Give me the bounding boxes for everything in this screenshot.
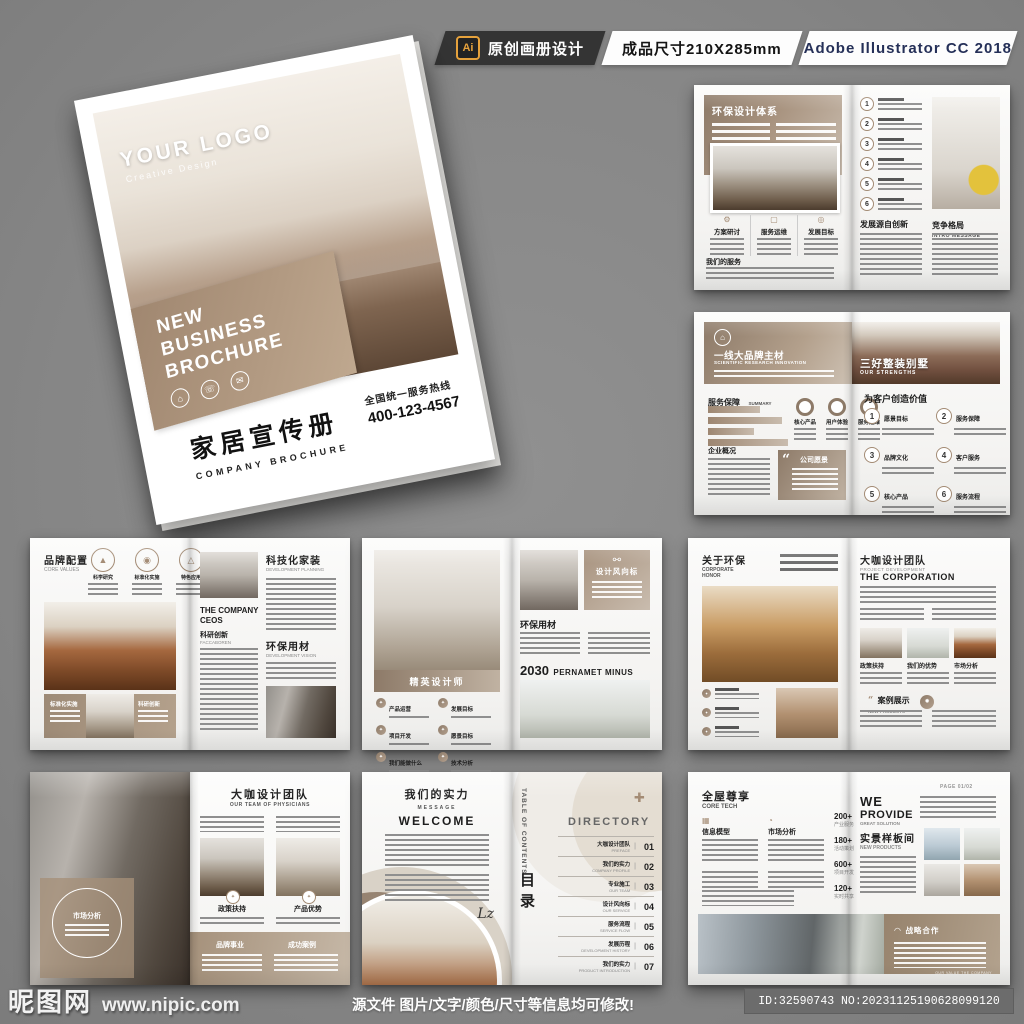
- s5-left-title-block: 关于环保 CORPORATE HONOR: [702, 552, 746, 579]
- spread-brand-materials: ⌂ 一线大品牌主材 SCIENTIFIC RESEARCH INNOVATION…: [694, 312, 1010, 515]
- s7-welcome-heading: WELCOME: [362, 814, 512, 828]
- spread-core-tech: 全屋尊享 CORE TECH ▦ 信息模型 ◔ 市场分析 200+产业服务 18…: [688, 772, 1010, 985]
- s8-coop-title: 战略合作: [905, 926, 939, 935]
- s8-right-sub: NEW PRODUCTS: [860, 845, 915, 851]
- home-icon: ⌂: [169, 386, 191, 410]
- item-label: 愿景目标: [451, 734, 473, 740]
- text-placeholder: [708, 458, 770, 496]
- s5-p2: 我们的优势: [907, 661, 949, 670]
- s3-hall-photo: [266, 686, 336, 738]
- text-placeholder: [860, 233, 922, 275]
- s5-left-title: 关于环保: [702, 552, 746, 567]
- bullet-icon: ✦: [376, 725, 386, 735]
- spread-eco-design-system: 环保设计体系 ⚙ 方案研讨 ▢ 服务运维 ◎ 发展目标 我们的服务: [694, 85, 1010, 290]
- gear-icon: ⚙: [704, 215, 750, 224]
- size-badge: 成品尺寸210X285mm: [601, 31, 802, 65]
- s5-left-sub2: HONOR: [702, 573, 746, 579]
- text-placeholder: [520, 632, 580, 656]
- s8-left-title-block: 全屋尊享 CORE TECH: [702, 788, 750, 810]
- text-placeholder: [860, 586, 996, 604]
- s3-mid-sub: FACCABOREN: [200, 640, 231, 645]
- s6-p2: 产品优势: [276, 904, 340, 914]
- s3-band1-label: 标准化实施: [50, 700, 78, 708]
- s4-num: 2030: [520, 663, 549, 678]
- s7-left-title: 我们的实力: [362, 786, 512, 802]
- s6-p1: 政策扶持: [200, 904, 264, 914]
- s3-band-photo: [86, 694, 134, 738]
- stat-value: 120+: [834, 884, 854, 893]
- s3-sub: CORE VALUES: [44, 567, 88, 573]
- s5-photo-row: 政策扶持 我们的优势 市场分析: [860, 628, 996, 684]
- text-placeholder: [710, 238, 744, 256]
- s8-we-sub: GREAT SOLUTION: [860, 821, 913, 826]
- quote-icon: “: [868, 696, 873, 706]
- s7-directory-list: 大咖设计团队PREFACE|01 我们的实力COMPANY PROFILE|02…: [558, 836, 654, 976]
- pie-chart-icon: ◔: [768, 816, 824, 825]
- s6-circle-label: 市场分析: [73, 911, 101, 921]
- s8-left-sub: CORE TECH: [702, 804, 750, 810]
- s3-company-label: THE COMPANYCEOS: [200, 606, 259, 626]
- s2-banner-photo: 三好整装别墅 OUR STRENGTHS: [852, 322, 1000, 384]
- stat-value: 600+: [834, 860, 854, 869]
- s2-photo-caption: 三好整装别墅: [860, 356, 929, 371]
- s2-banner-left: ⌂ 一线大品牌主材 SCIENTIFIC RESEARCH INNOVATION: [704, 322, 852, 384]
- s8-loft-photo: ◠ 战略合作 OUR VALUE THE COMPANY: [698, 914, 1000, 974]
- s7-left-sub: MESSAGE: [362, 805, 512, 811]
- s2-icon2-label: 用户体验: [826, 418, 848, 426]
- s3-right-title1: 科技化家装: [266, 552, 324, 567]
- s1-numbered-list: 1 2 3 4 5 6: [860, 97, 922, 211]
- s4-2030-heading: 2030 PERNAMET MINUS: [520, 662, 633, 680]
- s2-quote-title: 公司愿景: [800, 455, 828, 465]
- text-placeholder: [776, 123, 836, 140]
- s4-box-title: 设计风向标: [584, 566, 650, 577]
- item-label: 愿景目标: [884, 417, 908, 423]
- s8-icon2-label: 市场分析: [768, 827, 824, 837]
- s3-right-title1-block: 科技化家装 DEVELOPMENT PLANNING: [266, 552, 324, 572]
- s8-we-block: WE PROVIDE GREAT SOLUTION: [860, 794, 913, 826]
- s1-right-title2: 竞争格局: [932, 221, 964, 230]
- s4-right-title: 环保用材: [520, 618, 556, 631]
- s8-icon-col2: ◔ 市场分析: [768, 816, 824, 889]
- s3-mid-label: 科研创新: [200, 630, 231, 640]
- s1-interior-photo: [932, 97, 1000, 209]
- s6-band2: 成功案例: [288, 940, 316, 950]
- badge3-label: Adobe Illustrator CC 2018: [804, 40, 1012, 57]
- item-label: 品牌文化: [884, 456, 908, 462]
- item-label: 服务流程: [956, 495, 980, 501]
- logo-icon: ⌂: [714, 329, 731, 346]
- stat-label: 实时共享: [834, 893, 854, 900]
- list-number: 2: [860, 117, 874, 131]
- item-label: 发展目标: [451, 707, 473, 713]
- s3-right-sub1: DEVELOPMENT PLANNING: [266, 567, 324, 572]
- phone-icon: ☏: [199, 377, 221, 401]
- s3-bedroom-photo: [200, 552, 258, 598]
- s5-right-title: 大咖设计团队: [860, 552, 926, 567]
- item-label: 项目开发: [389, 734, 411, 740]
- stat-label: 活动策划: [834, 845, 854, 852]
- watermark-site-cn: 昵图网: [8, 982, 92, 1019]
- text-placeholder: [860, 608, 924, 622]
- bullet-icon: ✦: [438, 698, 448, 708]
- s7-directory-heading: DIRECTORY: [568, 816, 650, 828]
- text-placeholder: [200, 648, 258, 732]
- s8-we2: PROVIDE: [860, 809, 913, 821]
- item-label: 技术分析: [451, 761, 473, 767]
- bullet-icon: ✦: [376, 698, 386, 708]
- mail-icon: ✉: [229, 369, 251, 393]
- cover-hotline-block: 全国统一服务热线 400-123-4567: [363, 375, 461, 427]
- s7-signature: Lz: [362, 906, 512, 922]
- s2-icon1-label: 核心产品: [794, 418, 816, 426]
- s8-stats: 200+产业服务 180+活动策划 600+项目开发 120+实时共享: [834, 812, 854, 900]
- item-label: 产品运营: [389, 707, 411, 713]
- s8-we1: WE: [860, 794, 913, 809]
- s3-title-block: 品牌配置 CORE VALUES: [44, 552, 88, 573]
- s2-company-label: 企业概况: [708, 446, 736, 456]
- s5-p3: 市场分析: [954, 661, 996, 670]
- s8-icon-col1: ▦ 信息模型: [702, 816, 758, 889]
- s1-services-label: 我们的服务: [706, 257, 741, 267]
- s5-right-title-block: 大咖设计团队 PROJECT DEVELOPMENT: [860, 552, 926, 572]
- bullet-icon: ✦: [438, 725, 448, 735]
- s2-bar-chart: [708, 406, 788, 446]
- text-placeholder: [932, 233, 998, 275]
- s3-c2: 标准化实施: [132, 574, 162, 581]
- s1-col2-label: 服务运维: [751, 226, 797, 236]
- text-placeholder: [706, 267, 834, 281]
- text-placeholder: [792, 468, 838, 492]
- item-label: 服务保障: [956, 417, 980, 423]
- s8-coop-sub: OUR VALUE THE COMPANY: [884, 971, 992, 975]
- list-number: 5: [860, 177, 874, 191]
- s3-title: 品牌配置: [44, 552, 88, 567]
- s4-living-photo: [520, 680, 650, 738]
- text-placeholder: [588, 632, 650, 656]
- item-number: 6: [936, 486, 952, 502]
- adobe-illustrator-icon: Ai: [456, 36, 480, 60]
- s2-right-title: 为客户创造价值: [864, 392, 927, 405]
- spread-brand-config: 品牌配置 CORE VALUES ▲科学研究 ◉标准化实施 △特色应用 标准化实…: [30, 538, 350, 750]
- design-preview-canvas: Ai 原创画册设计 成品尺寸210X285mm Adobe Illustrato…: [0, 0, 1024, 1024]
- spread-elite-designers: 精英设计师 ✦产品运营 ✦发展目标 ✦项目开发 ✦愿景目标 ✦我们能做什么 ✦技…: [362, 538, 662, 750]
- original-design-badge: Ai 原创画册设计: [434, 31, 605, 65]
- badge-icon: ✦: [302, 890, 316, 904]
- quote-icon: “: [782, 452, 790, 468]
- s1-col3-label: 发展目标: [798, 226, 844, 236]
- s1-col1-label: 方案研讨: [704, 226, 750, 236]
- badge2-label: 成品尺寸210X285mm: [622, 38, 782, 59]
- monitor-icon: ▢: [751, 215, 797, 224]
- bullet-icon: ✦: [438, 752, 448, 762]
- s4-trend-box: ⚯ 设计风向标: [584, 550, 650, 610]
- compass-icon: ✹: [920, 695, 934, 709]
- target-icon: ◎: [798, 215, 844, 224]
- text-placeholder: [860, 856, 916, 894]
- model-icon: ▦: [702, 816, 758, 825]
- s7-welcome-block: 我们的实力 MESSAGE WELCOME Lz: [362, 786, 512, 922]
- stat-label: 项目开发: [834, 869, 854, 876]
- text-placeholder: [266, 578, 336, 630]
- s3-circles: ▲科学研究 ◉标准化实施 △特色应用: [88, 548, 206, 595]
- text-placeholder: [200, 816, 264, 832]
- item-number: 4: [936, 447, 952, 463]
- s5-bed-photo: [776, 688, 838, 738]
- s6-band1: 品牌事业: [216, 940, 244, 950]
- text-placeholder: [804, 238, 838, 256]
- badge-icon: ✦: [226, 890, 240, 904]
- text-placeholder: [920, 796, 996, 818]
- software-badge: Adobe Illustrator CC 2018: [798, 31, 1017, 65]
- s7-toc-cn: 目录: [516, 872, 537, 914]
- s6-band: 品牌事业 成功案例: [190, 932, 350, 985]
- plus-icon: ✚: [634, 790, 645, 806]
- headset-icon: ◠: [894, 926, 901, 935]
- spread-directory: 我们的实力 MESSAGE WELCOME Lz TABLE OF CONTEN…: [362, 772, 662, 985]
- s1-columns: ⚙ 方案研讨 ▢ 服务运维 ◎ 发展目标: [704, 215, 844, 256]
- spread-about-eco: 关于环保 CORPORATE HONOR ✦ ✦ ✦ 大咖设计团队 PROJEC…: [688, 538, 1010, 750]
- s3-c1: 科学研究: [88, 574, 118, 581]
- s8-coop-panel: ◠ 战略合作 OUR VALUE THE COMPANY: [884, 914, 1000, 974]
- s3-right-title2-block: 环保用材 DEVELOPMENT VISION: [266, 638, 316, 658]
- s4-caption: 精英设计师: [409, 675, 464, 688]
- s8-photo-grid: [924, 828, 1000, 896]
- s5-case-title: 案例展示: [878, 696, 910, 705]
- spread-design-team: 市场分析 大咖设计团队 OUR TEAM OF PHYSICIANS ✦ 政策扶…: [30, 772, 350, 985]
- s4-large-photo: 精英设计师: [374, 550, 500, 692]
- text-placeholder: [860, 710, 922, 728]
- s5-wardrobe-photo: [702, 586, 838, 682]
- s8-showroom-block: 实景样板间 NEW PRODUCTS: [860, 830, 915, 851]
- text-placeholder: [757, 238, 791, 256]
- stat-value: 180+: [834, 836, 854, 845]
- s3-right-title2: 环保用材: [266, 638, 316, 653]
- share-icon: ⚯: [584, 555, 650, 566]
- footer-id-text: ID:32590743 NO:20231125190628099120: [758, 995, 1000, 1008]
- stat-value: 200+: [834, 812, 854, 821]
- bullet-icon: ✦: [376, 752, 386, 762]
- s7-toc-vertical: TABLE OF CONTENTS: [520, 788, 527, 875]
- s4-num-label: PERNAMET MINUS: [553, 668, 633, 677]
- text-placeholder: [932, 710, 996, 728]
- text-placeholder: [780, 554, 838, 574]
- s6-overlay-box: 市场分析: [40, 878, 134, 978]
- s6-right-title: 大咖设计团队: [190, 786, 350, 802]
- list-number: 3: [860, 137, 874, 151]
- item-number: 5: [864, 486, 880, 502]
- s1-right-title1: 发展源自创新: [860, 219, 908, 230]
- stat-label: 产业服务: [834, 821, 854, 828]
- s1-title: 环保设计体系: [712, 103, 778, 118]
- footer-note: 源文件 图片/文字/颜色/尺寸等信息均可修改!: [352, 994, 634, 1015]
- badge1-label: 原创画册设计: [488, 38, 584, 59]
- watermark-site-url: www.nipic.com: [102, 995, 240, 1017]
- s6-right-page: 大咖设计团队 OUR TEAM OF PHYSICIANS ✦ 政策扶持 ✦ 产…: [190, 772, 350, 985]
- text-placeholder: [932, 608, 996, 622]
- s2-value-grid: 1愿景目标 2服务保障 3品牌文化 4客户服务 5核心产品 6服务流程: [864, 408, 1008, 515]
- s6-right-sub: OUR TEAM OF PHYSICIANS: [190, 802, 350, 808]
- list-number: 1: [860, 97, 874, 111]
- text-placeholder: [712, 123, 770, 140]
- item-number: 1: [864, 408, 880, 424]
- footer-id-box: ID:32590743 NO:20231125190628099120: [744, 988, 1014, 1014]
- s6-photo2-block: ✦ 产品优势: [276, 838, 340, 927]
- s2-quote-box: “ 公司愿景: [778, 450, 846, 500]
- item-number: 3: [864, 447, 880, 463]
- item-label: 客户服务: [956, 456, 980, 462]
- list-number: 6: [860, 197, 874, 211]
- text-placeholder: [702, 890, 794, 906]
- s4-icon-grid: ✦产品运营 ✦发展目标 ✦项目开发 ✦愿景目标 ✦我们能做什么 ✦技术分析: [376, 698, 500, 775]
- s2-banner-sub: SCIENTIFIC RESEARCH INNOVATION: [714, 360, 806, 365]
- s8-left-title: 全屋尊享: [702, 788, 750, 804]
- item-number: 2: [936, 408, 952, 424]
- item-label: 我们能做什么: [389, 761, 422, 767]
- text-placeholder: [266, 662, 336, 682]
- s4-bedroom-photo: [520, 550, 578, 610]
- text-placeholder: [276, 816, 340, 832]
- s1-kitchen-photo: [710, 143, 840, 213]
- item-label: 核心产品: [884, 495, 908, 501]
- s8-icon1-label: 信息模型: [702, 827, 758, 837]
- s3-right-sub2: DEVELOPMENT VISION: [266, 653, 316, 658]
- s5-bullets: ✦ ✦ ✦: [702, 688, 759, 737]
- list-number: 4: [860, 157, 874, 171]
- s3-band: 标准化实施 科研创新: [44, 694, 176, 738]
- s3-kitchen-photo: [44, 602, 176, 690]
- s6-photo1-block: ✦ 政策扶持: [200, 838, 264, 927]
- watermark: 昵图网 www.nipic.com: [8, 982, 240, 1019]
- s8-right-title: 实景样板间: [860, 830, 915, 845]
- s3-mid-block: 科研创新 FACCABOREN: [200, 630, 231, 645]
- s2-photo-sub: OUR STRENGTHS: [860, 370, 916, 376]
- s5-p1: 政策扶持: [860, 661, 902, 670]
- s3-band2-label: 科研创新: [138, 700, 160, 708]
- s5-corporation-heading: THE CORPORATION: [860, 572, 955, 582]
- s8-page-label: PAGE 01/02: [940, 784, 973, 790]
- text-placeholder: [714, 370, 834, 379]
- s6-hall-photo: 市场分析: [30, 772, 190, 985]
